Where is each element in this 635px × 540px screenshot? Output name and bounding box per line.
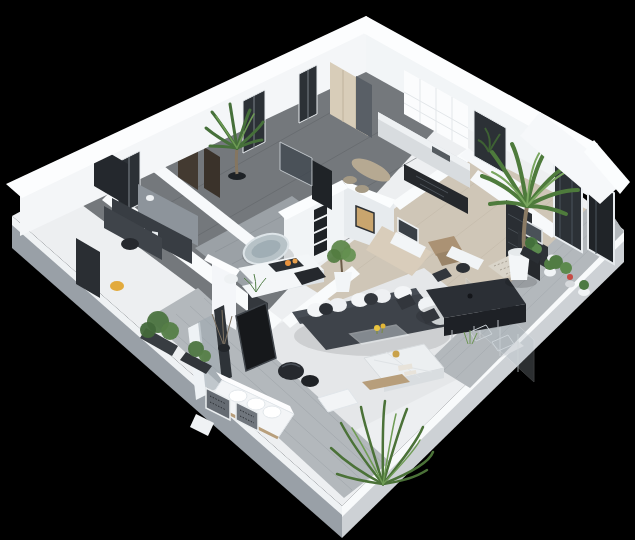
desk-chair — [121, 238, 139, 250]
gold-vase — [393, 351, 400, 358]
dark-curtain — [356, 76, 372, 138]
yellow-stool — [110, 281, 124, 291]
stool — [355, 185, 369, 193]
orange-fruit — [285, 260, 291, 266]
white-stool — [224, 274, 238, 284]
desk-lamp — [146, 195, 154, 201]
red-bloom — [567, 274, 573, 280]
table-vase — [468, 294, 473, 299]
round-pouf-small — [301, 375, 319, 387]
desk-nook-chair — [456, 263, 470, 273]
floor-plan-render — [0, 0, 635, 540]
stool — [343, 176, 357, 184]
orange-fruit — [293, 259, 298, 264]
dry-plant-pot — [218, 344, 230, 352]
